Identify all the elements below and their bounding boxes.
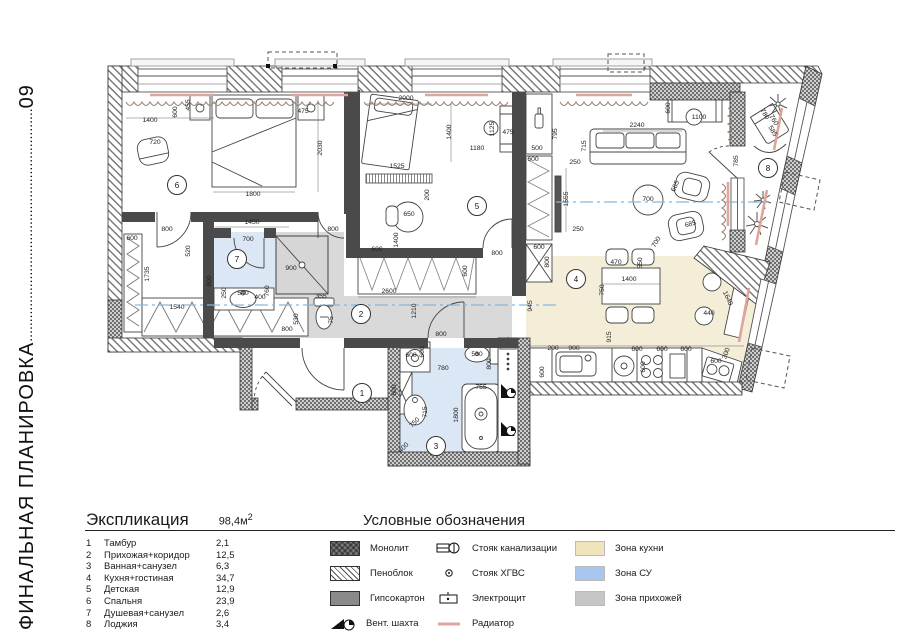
dim-label: 795 [552, 128, 559, 140]
dim-label: 355 [315, 293, 327, 300]
gypsum-swatch [330, 591, 360, 606]
dim-label: 530 [293, 313, 300, 325]
room-number: 2 [359, 310, 364, 319]
exterior-wall [227, 66, 282, 92]
dim-label: 600 [533, 244, 545, 251]
dim-label: 1125 [489, 121, 496, 136]
legend-symbols-column: Стояк канализацииСтояк ХГВСЭлектрощитРад… [436, 536, 557, 636]
dim-label: 600 [539, 366, 546, 378]
explication-num: 8 [86, 619, 104, 631]
wall [240, 340, 252, 410]
loggia-bench [754, 144, 786, 153]
dim-label: 1525 [389, 163, 404, 170]
bathtub [462, 384, 500, 452]
zone-color-swatch [575, 591, 605, 606]
dim-label: 470 [610, 259, 622, 266]
door [302, 348, 344, 390]
dim-label: 900 [285, 265, 297, 272]
dim-label: 2030 [317, 140, 324, 155]
dim-label: 800 [281, 326, 293, 333]
explication-row: 5Детская12,9 [86, 584, 341, 596]
room-number: 7 [235, 255, 240, 264]
legend-label: Радиатор [472, 618, 514, 629]
exterior-wall-corner [650, 83, 740, 100]
explication-row: 4Кухня+гостиная34,7 [86, 573, 341, 585]
explication-num: 3 [86, 561, 104, 573]
plant [746, 212, 768, 235]
room-number: 3 [434, 442, 439, 451]
dim-label: 760 [264, 285, 271, 297]
dim-label: 780 [437, 365, 449, 372]
dim-label: 915 [606, 331, 613, 343]
room-number: 1 [360, 389, 365, 398]
dim-label: 600 [462, 265, 469, 277]
explication-row: 2Прихожая+коридор12,5 [86, 550, 341, 562]
entrance-door [254, 372, 296, 406]
dim-label: 455 [185, 99, 192, 111]
drawing-sheet: ФИНАЛЬНАЯ ПЛАНИРОВКА....................… [0, 0, 900, 636]
total-area: 98,4м2 [219, 512, 253, 530]
legend-item: Пеноблок [330, 561, 425, 586]
dim-label: 1800 [245, 191, 260, 198]
dim-label: 715 [422, 406, 429, 418]
explication-num: 2 [86, 550, 104, 562]
dim-label: 1400 [142, 117, 157, 124]
window [412, 69, 502, 92]
dim-label: 600 [631, 346, 643, 353]
window [282, 69, 358, 92]
dim-label: 800 [206, 275, 213, 287]
explication-area: 2,6 [216, 608, 341, 620]
explication-row: 8Лоджия3,4 [86, 619, 341, 631]
dim-label: 250 [572, 226, 584, 233]
dim-label: 440 [703, 310, 715, 317]
tv-panel [555, 176, 561, 232]
explication-area: 3,4 [216, 619, 341, 631]
explication-table: Экспликация 98,4м2 1Тамбур2,12Прихожая+к… [86, 510, 341, 631]
legend-label: Монолит [370, 543, 409, 554]
dim-label: 600 [665, 102, 672, 114]
explication-name: Ванная+санузел [104, 561, 216, 573]
explication-area: 6,3 [216, 561, 341, 573]
legend-materials-column: МонолитПеноблокГипсокартонВент. шахта [330, 536, 425, 636]
dim-label: 550 [637, 257, 644, 269]
legend-label: Гипсокартон [370, 593, 425, 604]
dim-label: 1100 [692, 114, 707, 121]
explication-area: 12,5 [216, 550, 341, 562]
explication-num: 1 [86, 538, 104, 550]
vent-shaft-column [498, 337, 518, 452]
monolit-swatch [330, 541, 360, 556]
zone-color-swatch [575, 541, 605, 556]
explication-num: 6 [86, 596, 104, 608]
explication-name: Спальня [104, 596, 216, 608]
door [483, 219, 512, 248]
dim-label: 520 [185, 245, 192, 257]
legend-item: Радиатор [436, 611, 557, 636]
nightstand [190, 95, 210, 120]
wardrobe-hanger-column [124, 234, 142, 332]
shelf-unit [366, 174, 432, 183]
dim-label: 800 [544, 256, 551, 268]
dim-label: 800 [486, 358, 493, 370]
dim-label: 650 [403, 211, 415, 218]
explication-name: Тамбур [104, 538, 216, 550]
legend-item: Монолит [330, 536, 425, 561]
explication-row: 6Спальня23,9 [86, 596, 341, 608]
dim-label: 1400 [446, 124, 453, 139]
dim-label: 1540 [169, 304, 184, 311]
single-bed [361, 94, 418, 170]
explication-num: 5 [86, 584, 104, 596]
dim-label: 800 [435, 331, 447, 338]
legend-label: Стояк ХГВС [472, 568, 525, 579]
wall [518, 338, 530, 464]
explication-name: Детская [104, 584, 216, 596]
dim-label: 1400 [393, 232, 400, 247]
legend-label: Вент. шахта [366, 618, 419, 629]
dim-label: 2000 [398, 95, 413, 102]
exterior-wall [108, 66, 122, 306]
zone-color-swatch [575, 566, 605, 581]
window-loggia-divider [731, 178, 744, 230]
dim-label: 600 [527, 156, 539, 163]
legend-label: Электрощит [472, 593, 526, 604]
wall [730, 92, 745, 146]
double-bed [212, 95, 296, 187]
explication-row: 3Ванная+санузел6,3 [86, 561, 341, 573]
dim-label: 250 [221, 287, 228, 299]
dim-label: 800 [491, 250, 503, 257]
explication-title: Экспликация [86, 510, 189, 530]
dim-label: 540 [237, 290, 249, 297]
chair [386, 206, 398, 226]
explication-name: Прихожая+коридор [104, 550, 216, 562]
hallway-wardrobe [358, 254, 476, 294]
dim-label: 600 [172, 106, 179, 118]
legend-label: Пеноблок [370, 568, 413, 579]
legend-item: Зона кухни [575, 536, 682, 561]
water-riser-icon [436, 566, 462, 581]
explication-name: Лоджия [104, 619, 216, 631]
dim-label: 700 [642, 196, 654, 203]
explication-num: 7 [86, 608, 104, 620]
sofa [590, 129, 686, 164]
dim-label: 200 [547, 345, 559, 352]
wall [252, 398, 258, 410]
window-sill [275, 59, 365, 66]
dim-label: 530 [471, 351, 483, 358]
window-sill [553, 59, 652, 66]
legend-item: Гипсокартон [330, 586, 425, 611]
dim-label: 600 [680, 346, 692, 353]
penoblok-swatch [330, 566, 360, 581]
exterior-wall [358, 66, 412, 92]
explication-name: Кухня+гостиная [104, 573, 216, 585]
window-sill [131, 59, 234, 66]
legend-item: Стояк ХГВС [436, 561, 557, 586]
vent-shaft-icon [330, 616, 356, 631]
window [560, 69, 650, 92]
explication-name: Душевая+санузел [104, 608, 216, 620]
dim-label: 945 [527, 300, 534, 312]
legend-label: Зона кухни [615, 543, 664, 554]
wall [388, 452, 530, 466]
legend-item: Вент. шахта [330, 611, 425, 636]
dim-label: 600 [656, 346, 668, 353]
room-number: 6 [175, 181, 180, 190]
dim-label: 200 [424, 189, 431, 201]
radiator-icon [436, 616, 462, 631]
dim-label: 600 [126, 235, 138, 242]
explication-area: 2,1 [216, 538, 341, 550]
dim-label: 1735 [144, 266, 151, 281]
dim-label: 900 [568, 345, 580, 352]
wall [388, 340, 400, 466]
dim-label: 75 [328, 316, 335, 324]
legend-item: Зона СУ [575, 561, 682, 586]
legend-item: Электрощит [436, 586, 557, 611]
dim-label: 1180 [470, 145, 485, 152]
dim-label: 700 [242, 236, 254, 243]
sewer-riser-icon [436, 541, 462, 556]
exterior-wall [526, 382, 742, 395]
legend-label: Зона прихожей [615, 593, 682, 604]
explication-row: 7Душевая+санузел2,6 [86, 608, 341, 620]
dim-label: 715 [581, 140, 588, 152]
room-number: 5 [475, 202, 480, 211]
dim-label: 250 [569, 159, 581, 166]
room-number: 4 [574, 275, 579, 284]
dim-label: 475 [297, 108, 309, 115]
legend-item: Зона прихожей [575, 586, 682, 611]
window-sill [405, 59, 509, 66]
dim-label: 600 [419, 346, 426, 358]
window-diagonal [768, 188, 795, 252]
dim-label: 1450 [244, 219, 259, 226]
dim-label: 600 [371, 246, 383, 253]
explication-area: 12,9 [216, 584, 341, 596]
exterior-wall [502, 66, 560, 92]
dim-label: 785 [733, 155, 740, 167]
explication-area: 34,7 [216, 573, 341, 585]
dim-label: 600 [640, 361, 647, 373]
dim-label: 600 [405, 352, 417, 359]
dim-label: 800 [161, 226, 173, 233]
shower-tray [276, 236, 328, 294]
wall [296, 398, 388, 410]
explication-num: 4 [86, 573, 104, 585]
legend-zones-column: Зона кухниЗона СУЗона прихожей [575, 536, 682, 611]
explication-row: 1Тамбур2,1 [86, 538, 341, 550]
duct-anchor [333, 64, 337, 68]
legend-item: Стояк канализации [436, 536, 557, 561]
exterior-wall [645, 66, 822, 83]
dim-label: 1555 [563, 191, 570, 206]
dim-label: 2240 [629, 122, 644, 129]
dim-label: 800 [327, 226, 339, 233]
dim-label: 1400 [621, 276, 636, 283]
room-number: 8 [766, 164, 771, 173]
pantry-closet [526, 156, 552, 240]
dim-label: 1210 [411, 303, 418, 318]
dim-label: 720 [149, 139, 161, 146]
dim-label: 755 [475, 384, 487, 391]
loggia-armchair [750, 104, 789, 145]
dim-label: 600 [710, 358, 722, 365]
electric-panel-icon [436, 591, 462, 606]
legend-label: Стояк канализации [472, 543, 557, 554]
dim-label: 2600 [381, 288, 396, 295]
dim-label: 700 [651, 235, 663, 249]
legend-label: Зона СУ [615, 568, 652, 579]
dim-label: 1800 [453, 407, 460, 422]
dim-label: 475 [502, 129, 514, 136]
duct-anchor [266, 64, 270, 68]
explication-rows: 1Тамбур2,12Прихожая+коридор12,53Ванная+с… [86, 538, 341, 631]
dim-label: 750 [599, 284, 606, 296]
dim-label: 500 [531, 145, 543, 152]
explication-area: 23,9 [216, 596, 341, 608]
window-diagonal [787, 98, 815, 163]
window [138, 69, 227, 92]
dim-label: 600 [391, 384, 398, 396]
wall [730, 230, 745, 252]
legend-title: Условные обозначения [363, 512, 525, 529]
